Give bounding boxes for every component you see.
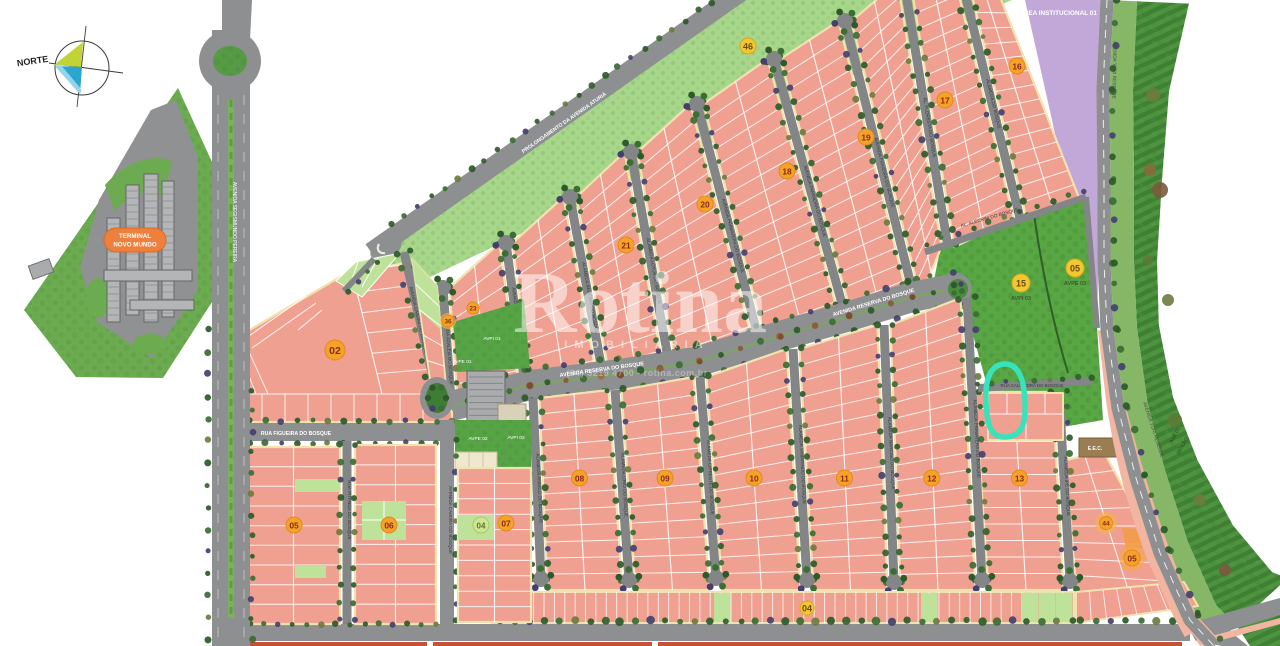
svg-text:36: 36 [444,319,452,326]
svg-text:46: 46 [743,41,753,51]
svg-text:09: 09 [660,473,670,483]
svg-text:02: 02 [329,345,341,357]
svg-text:E.E.C.: E.E.C. [1088,446,1103,452]
svg-text:06: 06 [384,520,394,530]
svg-text:17: 17 [940,95,950,105]
svg-text:Rotina: Rotina [513,255,767,352]
svg-text:AVPI 02: AVPI 02 [507,435,525,441]
svg-text:NOVO MUNDO: NOVO MUNDO [113,242,156,249]
svg-text:04: 04 [477,522,486,531]
svg-text:TERMINAL: TERMINAL [119,233,151,240]
svg-text:13: 13 [1015,473,1025,483]
svg-text:44: 44 [1102,521,1110,528]
svg-text:AVPI 03: AVPI 03 [1011,296,1031,302]
svg-text:21: 21 [621,240,631,250]
svg-text:AVPE 01: AVPE 01 [452,359,471,365]
svg-text:07: 07 [501,518,511,528]
svg-text:AVPE 03: AVPE 03 [1064,281,1086,287]
svg-text:AVPI 01: AVPI 01 [483,336,501,342]
svg-text:11: 11 [840,473,849,483]
svg-text:AVENIDA SEGISMUNDO PEREIRA: AVENIDA SEGISMUNDO PEREIRA [231,182,237,263]
svg-text:23: 23 [469,306,477,313]
svg-text:05: 05 [289,520,299,530]
svg-text:AVPE 02: AVPE 02 [468,436,487,442]
svg-text:05: 05 [1070,263,1080,273]
svg-text:ÁREA INSTITUCIONAL 01: ÁREA INSTITUCIONAL 01 [1019,8,1097,17]
svg-text:IMOBILIÁRIA: IMOBILIÁRIA [564,338,709,351]
svg-text:19: 19 [861,132,871,142]
svg-text:16: 16 [1012,61,1022,71]
svg-text:RUA CALIANDRA DO BOSQUE: RUA CALIANDRA DO BOSQUE [1001,383,1064,388]
svg-text:AVENIDA CAIEIRA DO BOSQUE: AVENIDA CAIEIRA DO BOSQUE [448,486,453,554]
svg-text:RUA PITANGA DO BOSQUE: RUA PITANGA DO BOSQUE [347,480,352,539]
svg-text:RUA FIGUEIRA DO BOSQUE: RUA FIGUEIRA DO BOSQUE [261,431,332,437]
svg-text:10: 10 [749,473,759,483]
svg-text:18: 18 [782,166,792,176]
svg-text:04: 04 [802,603,812,613]
svg-text:(34) 3219 4700 - rotina.com.br: (34) 3219 4700 - rotina.com.br [566,368,708,378]
svg-text:08: 08 [575,473,585,483]
svg-text:15: 15 [1016,278,1026,288]
svg-text:12: 12 [927,473,937,483]
svg-text:AVENIDA YURI RESENDE: AVENIDA YURI RESENDE [1110,41,1117,99]
svg-text:20: 20 [700,199,710,209]
svg-text:05: 05 [1127,553,1137,563]
